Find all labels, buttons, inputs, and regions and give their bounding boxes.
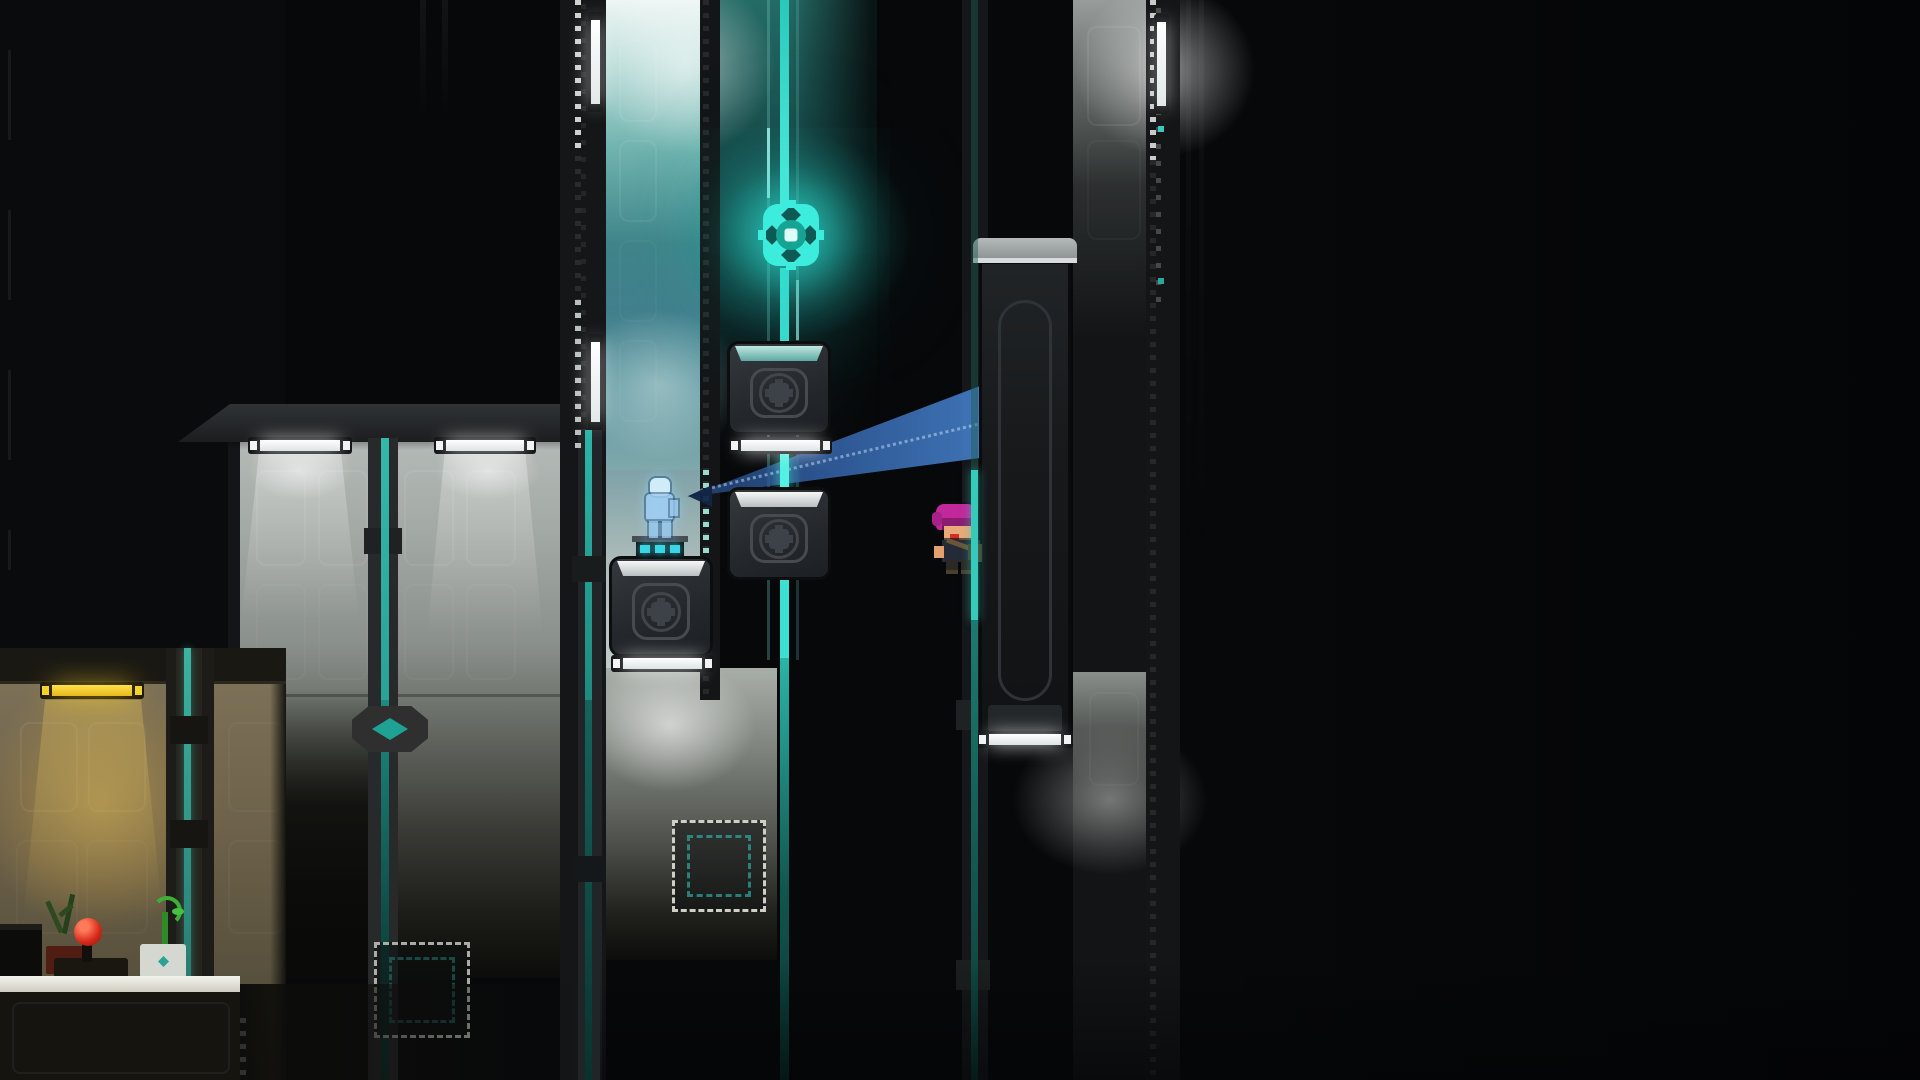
desk-front (0, 992, 240, 1080)
sprout-leaf (172, 908, 184, 915)
crate-large[interactable] (609, 556, 713, 657)
player-character[interactable] (934, 504, 986, 570)
rail-sideline-bright (796, 280, 799, 340)
rail-line-center (780, 268, 789, 345)
tube-cap (979, 735, 986, 744)
game-scene-canvas[interactable] (0, 0, 1920, 1080)
rail-sideline-bright (767, 128, 770, 198)
rail-clamp (572, 856, 606, 882)
door-seam (998, 300, 1052, 701)
lamp-core (1157, 22, 1166, 106)
orb-tab (816, 230, 824, 240)
rail-line-center-top (780, 0, 789, 205)
emblem-gear (769, 383, 789, 403)
rail-clamp (572, 556, 606, 582)
tube-cap (823, 441, 830, 450)
joystick-ball[interactable] (74, 918, 102, 946)
tube-core (741, 440, 820, 451)
orb-core (785, 229, 798, 242)
wall-tube-light-right (434, 437, 536, 454)
player-hand (934, 546, 944, 558)
tube-cap (705, 659, 712, 668)
crate-upper[interactable] (727, 341, 831, 435)
pedestal-light (640, 545, 650, 553)
tube-cap (613, 659, 620, 668)
socket-panel-teal[interactable] (672, 820, 766, 912)
rail-teal-dot (1158, 126, 1164, 132)
tube-cap (250, 441, 257, 450)
tube-cap (527, 441, 534, 450)
platform-bar-large (611, 655, 714, 672)
tube-cap (343, 441, 350, 450)
pedestal-light (655, 545, 665, 553)
orb-tab (786, 200, 796, 208)
tube-cap (42, 686, 49, 695)
hologram-arm (670, 500, 678, 516)
rail-line-center (780, 578, 789, 658)
orb-tab (758, 230, 766, 240)
emblem-gear (769, 529, 789, 549)
tube-cap (436, 441, 443, 450)
left-wall-seam-strip (8, 50, 11, 570)
desk-top (0, 976, 240, 992)
crate-emblem (750, 368, 808, 418)
rail-teeth (240, 1018, 246, 1080)
tube-cap (1064, 735, 1071, 744)
vertical-lamp-1 (588, 12, 603, 112)
door-cap-lip (973, 258, 1077, 263)
orb-tab (786, 262, 796, 270)
rail-teeth-bright (575, 300, 581, 450)
monitor (0, 924, 42, 980)
desk-side-block (240, 984, 600, 1080)
desk-front-seam (12, 1002, 230, 1074)
tube-core (260, 440, 340, 451)
character-rail-line-dim-top (971, 0, 978, 470)
door-base (988, 705, 1062, 733)
rail-teeth (581, 0, 586, 440)
bottom-vignette (600, 960, 1920, 1080)
rail-teeth (1150, 160, 1156, 1080)
tube-core (989, 734, 1061, 745)
crate-emblem (632, 583, 690, 640)
rail-teal-dot (1158, 278, 1164, 284)
crate-middle[interactable] (727, 487, 831, 580)
lamp-core (591, 20, 600, 104)
character-rail-line-dim (971, 620, 978, 1080)
hologram-leg (649, 521, 658, 538)
door-light-bar (977, 731, 1073, 748)
player-leg (946, 560, 958, 574)
emblem-gear (651, 602, 671, 622)
hologram-leg (662, 521, 671, 538)
vertical-lamp-3 (1154, 14, 1169, 114)
sliding-door[interactable] (979, 261, 1071, 744)
beam-arrow-icon (688, 485, 712, 507)
energy-orb[interactable] (762, 203, 820, 267)
crate-emblem (750, 514, 808, 563)
rail-clamp (170, 820, 208, 848)
lamp-core (591, 342, 600, 422)
crate-top-band (735, 492, 823, 507)
player-hair-tuft (932, 512, 942, 526)
desk-group (0, 890, 620, 1080)
hologram-body (646, 494, 673, 521)
rail-line-center-low (780, 658, 789, 1080)
rail-line-center-bright (780, 452, 789, 492)
tube-cap (731, 441, 738, 450)
rail-clamp (170, 716, 208, 744)
pedestal-light (670, 545, 680, 553)
tube-core (623, 658, 702, 669)
rail-teeth-bright (575, 0, 581, 150)
character-rail-line-bright (971, 470, 978, 620)
tube-core (446, 440, 524, 451)
socket-inner-ring (687, 835, 751, 897)
tube-cap (135, 686, 142, 695)
crate-top-band (735, 346, 823, 361)
hologram-figure[interactable] (641, 478, 679, 540)
top-left-faint-stripes (420, 0, 454, 120)
crate-top-band (617, 561, 705, 576)
platform-bar-upper (729, 437, 832, 454)
gray-room-rail-line (381, 438, 389, 700)
right-vignette (1200, 0, 1920, 1080)
tube-core (52, 685, 132, 696)
wall-tube-light-left (248, 437, 352, 454)
vertical-lamp-2 (588, 334, 603, 430)
yellow-tube-light (40, 682, 144, 699)
sprout-stem (162, 912, 168, 944)
